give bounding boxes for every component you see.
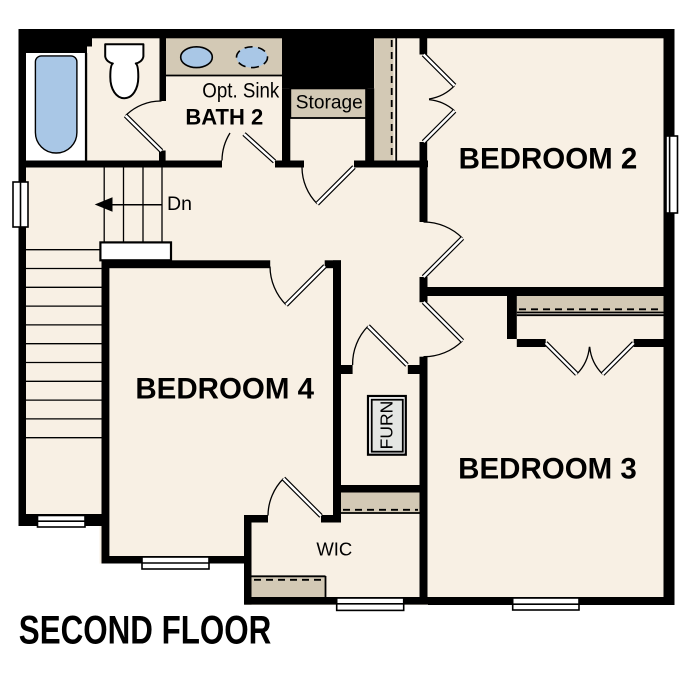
- svg-text:Dn: Dn: [167, 193, 192, 215]
- svg-text:BEDROOM 4: BEDROOM 4: [135, 373, 314, 406]
- svg-text:WIC: WIC: [316, 539, 352, 560]
- svg-text:SECOND FLOOR: SECOND FLOOR: [19, 609, 272, 653]
- svg-text:BATH 2: BATH 2: [185, 104, 263, 129]
- svg-text:BEDROOM 3: BEDROOM 3: [458, 452, 637, 485]
- svg-text:FURN: FURN: [377, 401, 397, 450]
- svg-text:Opt. Sink: Opt. Sink: [202, 79, 279, 103]
- svg-text:Storage: Storage: [296, 92, 363, 114]
- svg-text:BEDROOM 2: BEDROOM 2: [459, 143, 638, 176]
